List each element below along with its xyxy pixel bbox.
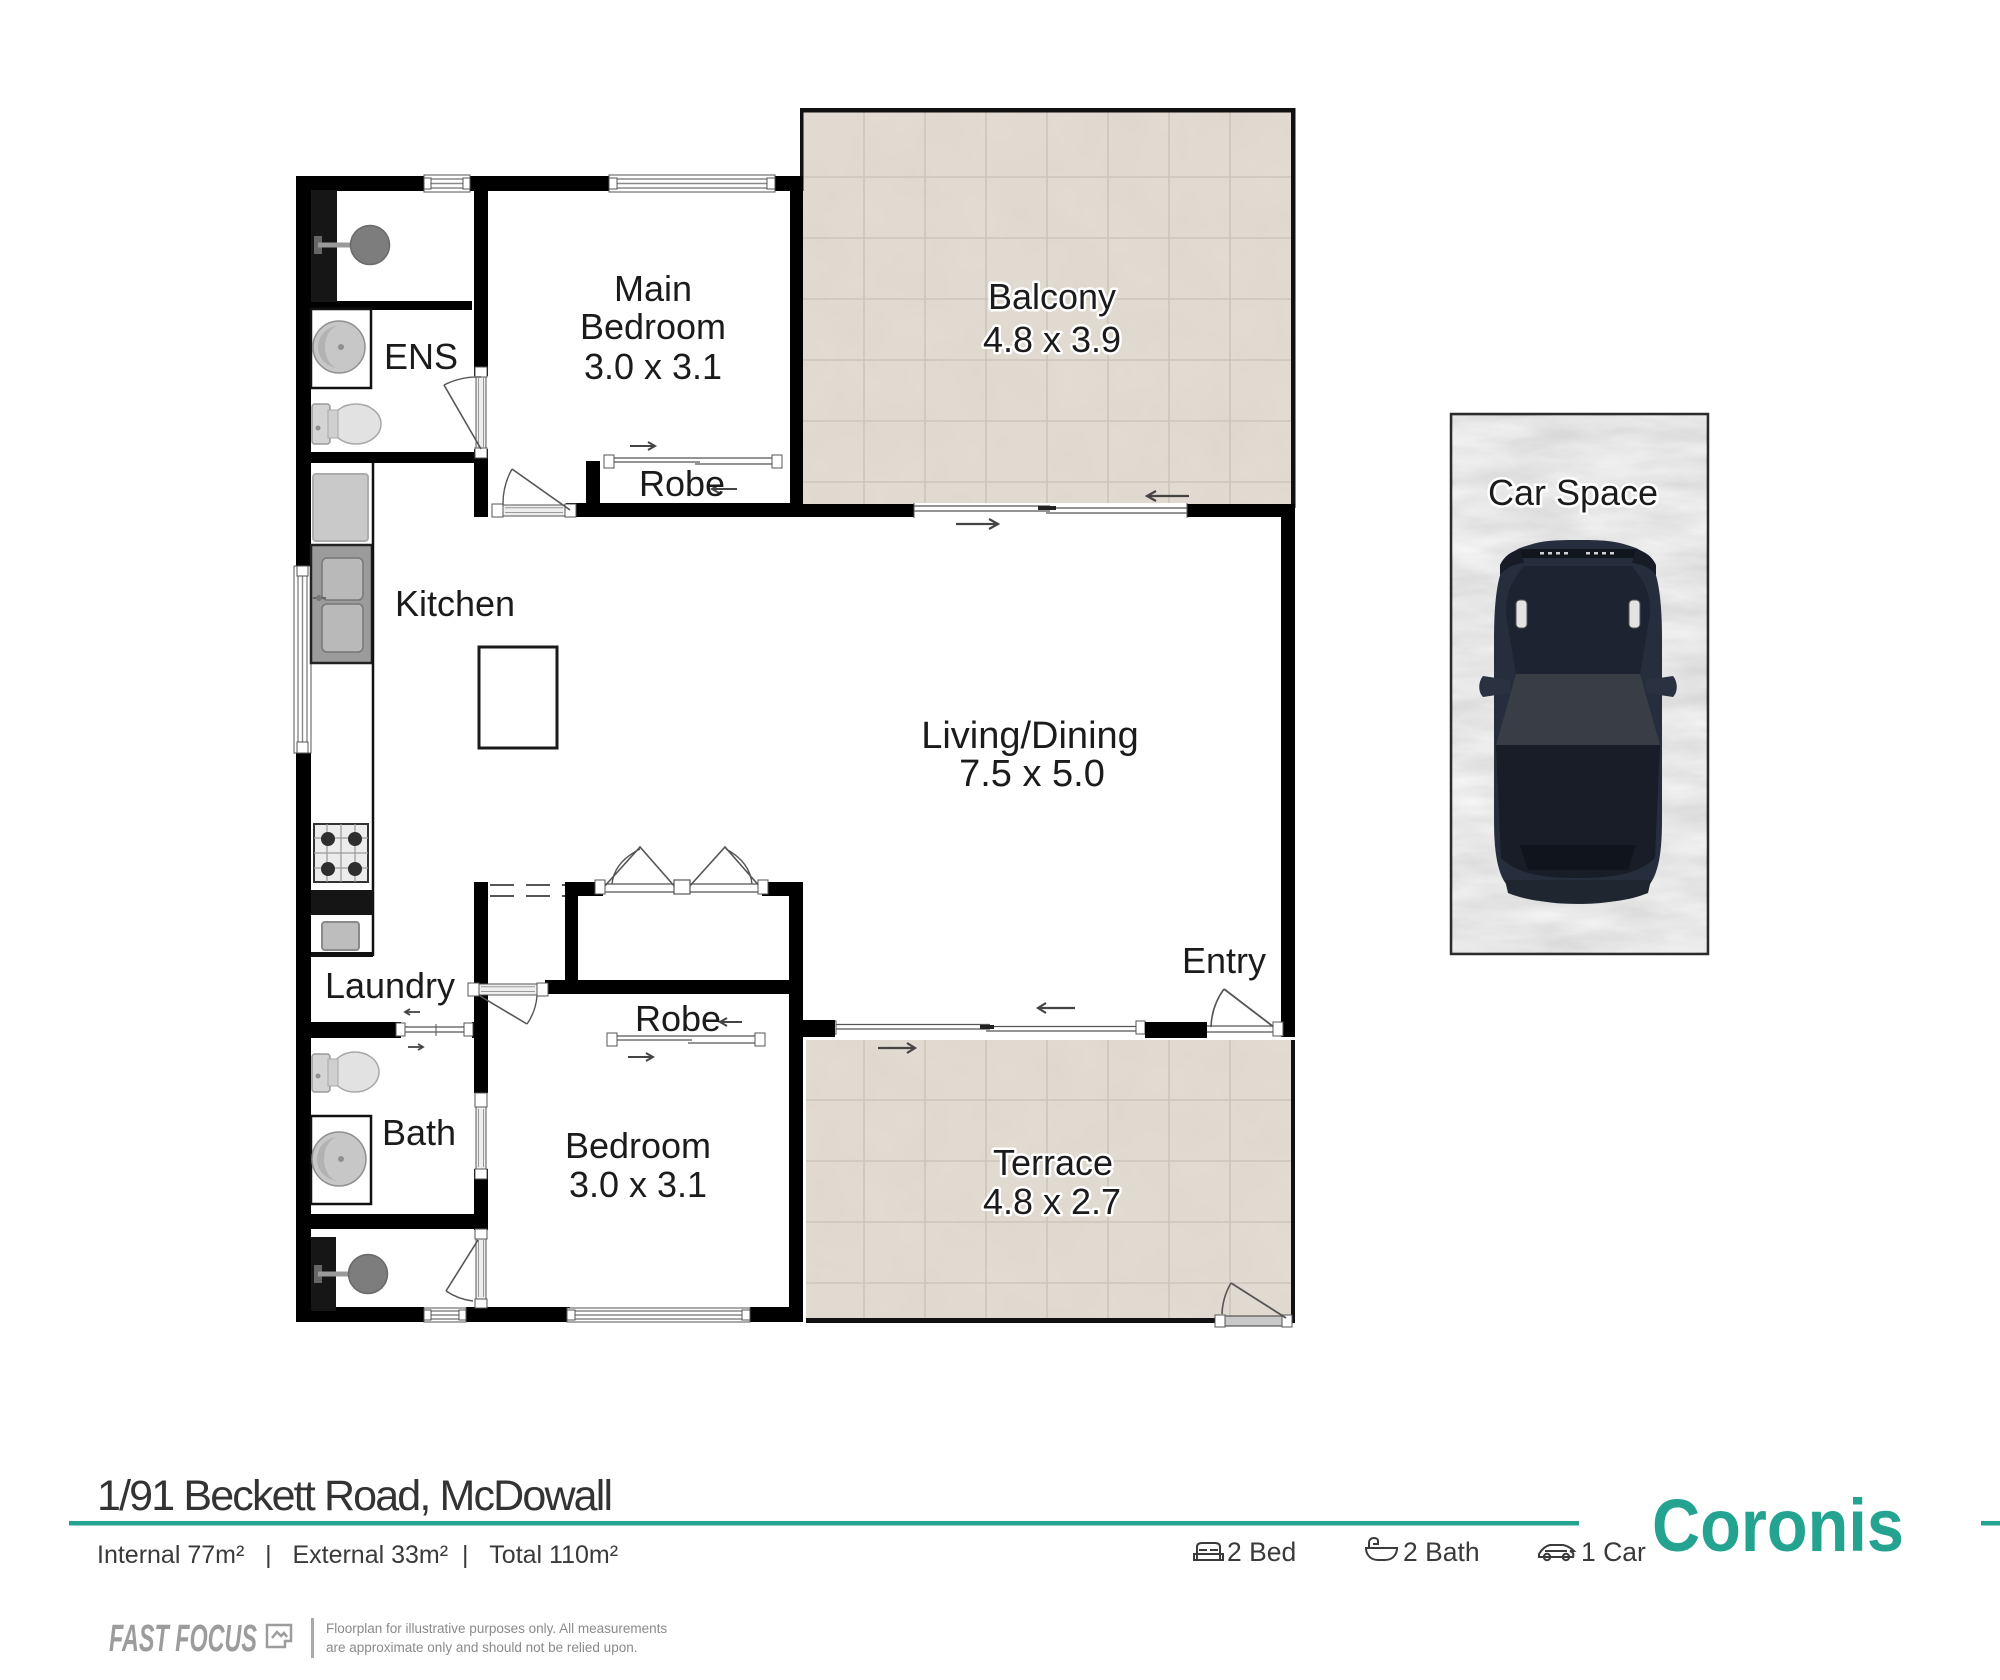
svg-text:FAST FOCUS: FAST FOCUS [109,1618,257,1660]
svg-text:Internal 77m² | External 3: Internal 77m² | External 33m² | Total 11… [97,1541,618,1569]
svg-text:ENS: ENS [384,336,458,377]
svg-text:Robe: Robe [635,998,721,1039]
svg-text:Living/Dining: Living/Dining [921,715,1139,757]
svg-text:4.8 x 3.9: 4.8 x 3.9 [983,319,1121,360]
svg-text:1/91 Beckett Road, McDowall: 1/91 Beckett Road, McDowall [97,1472,613,1520]
svg-text:Bath: Bath [382,1112,456,1153]
svg-text:2 Bath: 2 Bath [1403,1537,1480,1567]
svg-text:Terrace: Terrace [993,1142,1113,1183]
svg-text:Entry: Entry [1182,940,1266,981]
svg-text:Floorplan for illustrative pur: Floorplan for illustrative purposes only… [326,1621,667,1636]
svg-text:Bedroom: Bedroom [580,306,726,347]
svg-text:7.5 x 5.0: 7.5 x 5.0 [959,753,1105,795]
svg-text:Robe: Robe [639,463,725,504]
svg-text:3.0 x 3.1: 3.0 x 3.1 [584,346,722,387]
svg-text:1 Car: 1 Car [1581,1537,1646,1567]
svg-text:2 Bed: 2 Bed [1227,1537,1296,1567]
svg-text:3.0 x 3.1: 3.0 x 3.1 [569,1164,707,1205]
svg-text:Kitchen: Kitchen [395,583,515,624]
svg-text:Balcony: Balcony [988,276,1116,317]
svg-text:Car Space: Car Space [1488,472,1658,513]
svg-text:Laundry: Laundry [325,965,455,1006]
svg-text:Bedroom: Bedroom [565,1125,711,1166]
svg-text:are approximate only and shoul: are approximate only and should not be r… [326,1640,637,1655]
svg-text:Main: Main [614,268,692,309]
svg-text:4.8 x 2.7: 4.8 x 2.7 [983,1181,1121,1222]
svg-text:Coronis: Coronis [1652,1484,1904,1567]
